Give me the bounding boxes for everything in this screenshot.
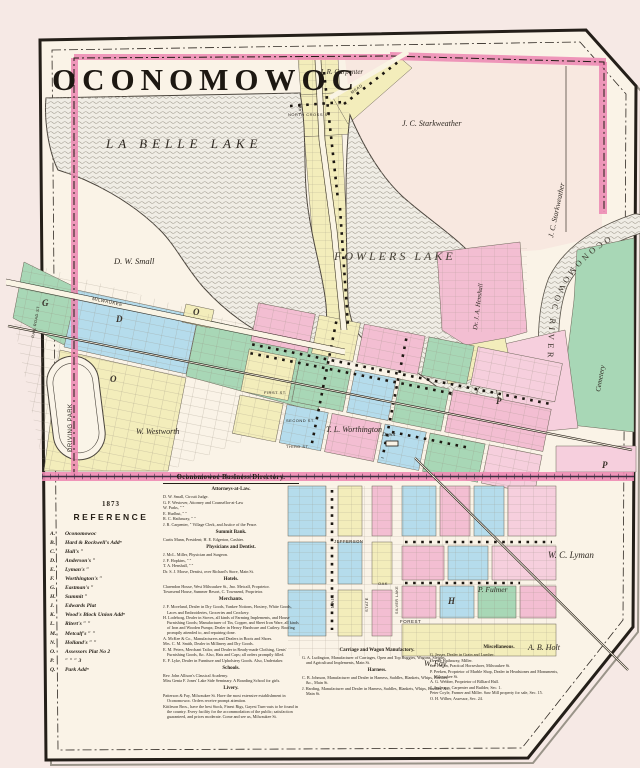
directory-entry: Kittleson Bros., have the best Stock, Fi… <box>163 704 299 719</box>
reference-item-label: ″ ″ ″ 3 <box>65 657 172 666</box>
directory-entry: J. F. Moreland, Dealer in Dry Goods, Yan… <box>163 604 299 614</box>
directory-entry: Rev. John Allison's Classical Academy. <box>163 673 299 678</box>
reference-item-key: O. <box>50 648 65 657</box>
reference-item-label: Worthington's ″ <box>65 575 172 584</box>
section-heading: Hotels. <box>163 577 299 583</box>
directory-entry: P. Peeken, Proprietor of Marble Shop, De… <box>430 669 568 679</box>
directory-entry: Clarendon House, West Milwaukee St., Jno… <box>163 584 299 589</box>
reference-heading: REFERENCE <box>50 512 172 522</box>
reference-year: 1873 <box>50 500 172 508</box>
directory-entry: E. M. Peters, Merchant Tailor, and Deale… <box>163 647 299 657</box>
reference-item: M. Metcalf's ″ ″ <box>50 630 172 639</box>
directory-entry: D. W. Small, Circuit Judge. <box>163 494 299 499</box>
state-st-label: STATE <box>364 597 369 612</box>
directory-entry: W. Parks, ″ ″ <box>163 505 299 510</box>
directory-section-misc: Miscellaneous. G. Jesser, Dealer in Grai… <box>430 645 568 701</box>
directory-misc-column: Miscellaneous. G. Jesser, Dealer in Grai… <box>430 642 568 702</box>
reference-item: J. Edwards Plat <box>50 602 172 611</box>
reference-item: P. ″ ″ ″ 3 <box>50 657 172 666</box>
directory-entry: J. R. Carpenter, ″ Village Clerk, and Ju… <box>163 522 299 527</box>
reference-item-label: Anderson's ″ <box>65 557 172 566</box>
reference-item-label: Oconomowoc <box>65 530 172 539</box>
plat-letter-g: G <box>42 298 49 308</box>
section-heading: Miscellaneous. <box>430 645 568 651</box>
main-st-label: MAIN <box>330 595 335 608</box>
reference-item-key: B. <box>50 539 65 548</box>
third-st-label: THIRD ST. <box>286 444 310 449</box>
reference-item-key: E. <box>50 566 65 575</box>
directory-entry: Jas. Fallon, Practical Horseshoer, Milwa… <box>430 663 568 668</box>
south-town-grid <box>288 486 556 656</box>
depot-label: Depot <box>381 432 396 438</box>
section-heading: Merchants. <box>163 597 299 603</box>
business-directory: Oconomowoc Business Directory. Attorneys… <box>163 474 299 720</box>
reference-item-key: C. <box>50 548 65 557</box>
section-heading: Physicians and Dentist. <box>163 545 299 551</box>
carpenter-label: J. R. Carpenter <box>320 68 363 76</box>
reference-item: B. Hard & Rockwell's Addⁿ <box>50 539 172 548</box>
westworth-label: W. Westworth <box>136 427 179 436</box>
directory-entry: A. G. Webber, Proprietor of Billiard Hal… <box>430 679 568 684</box>
directory-entry: J. Anderson, Carpenter and Builder, Sec.… <box>430 685 568 690</box>
reference-item-key: M. <box>50 630 65 639</box>
directory-entry: Townsend House, Summer Resort, C. Townse… <box>163 589 299 594</box>
reference-item-key: G. <box>50 584 65 593</box>
reference-item-key: Q. <box>50 666 65 675</box>
lyman-label: W. C. Lyman <box>548 550 594 560</box>
plat-letter-p: P <box>496 396 502 406</box>
driving-park-label: DRIVING PARK <box>68 403 74 452</box>
reference-item-key: P. <box>50 657 65 666</box>
directory-entry: E. Hurlbut, ″ ″ <box>163 511 299 516</box>
reference-item: O. Assessors Plat No 2 <box>50 648 172 657</box>
reference-list: A. Oconomowoc B. Hard & Rockwell's Addⁿ … <box>50 530 172 675</box>
reference-item-key: H. <box>50 593 65 602</box>
directory-section-physicians: Physicians and Dentist. J. McL. Miller, … <box>163 545 299 574</box>
map-title: OCONOMOWOC <box>52 62 360 97</box>
reference-legend: 1873 REFERENCE A. Oconomowoc B. Hard & R… <box>50 500 172 675</box>
plat-letter-o: O <box>110 374 117 384</box>
directory-entry: J. McL. Miller, Physician and Surgeon. <box>163 552 299 557</box>
directory-entry: G. F. Westover, Attorney and Counsellor-… <box>163 500 299 505</box>
reference-item: D. Anderson's ″ <box>50 557 172 566</box>
directory-entry: J. F. Hopkins, ″ ″ <box>163 558 299 563</box>
reference-item: N. Holland's ″ ″ <box>50 639 172 648</box>
reference-item: Q. Park Addⁿ <box>50 666 172 675</box>
silver-lake-st-label: SILVER LAKE <box>395 586 399 614</box>
reference-item: E. Lyman's ″ <box>50 566 172 575</box>
reference-item-label: Ritert's ″ ″ <box>65 620 172 629</box>
oak-st-label: OAK <box>378 581 388 586</box>
plat-letter-d: D <box>115 314 123 324</box>
la-belle-lake-label: LA BELLE LAKE <box>105 136 263 151</box>
reference-item: H. Summit ″ <box>50 593 172 602</box>
reference-item-label: Summit ″ <box>65 593 172 602</box>
reference-item-label: Metcalf's ″ ″ <box>65 630 172 639</box>
first-st-label: FIRST ST. <box>264 390 287 395</box>
directory-entry: Orville Hathaway, Miller. <box>430 658 568 663</box>
forest-st-label: FOREST <box>400 619 421 624</box>
reference-item-label: Edwards Plat <box>65 602 172 611</box>
reference-item-label: Holland's ″ ″ <box>65 639 172 648</box>
directory-entry: H. Lodeborg, Dealer in Stoves, all kinds… <box>163 615 299 635</box>
directory-entry: A. McKee & Co., Manufacturers and Dealer… <box>163 636 299 641</box>
reference-item: K. Wood's Block Union Addⁿ <box>50 611 172 620</box>
directory-section-schools: Schools. Rev. John Allison's Classical A… <box>163 666 299 684</box>
directory-entry: R. C. Hathaway, ″ ″ <box>163 516 299 521</box>
second-st-label: SECOND ST. <box>286 418 315 423</box>
plat-letter-p2: P <box>602 460 608 470</box>
section-heading: Summit Bank. <box>163 530 299 536</box>
reference-item-key: J. <box>50 602 65 611</box>
small-label: D. W. Small <box>113 256 155 266</box>
reference-item: F. Worthington's ″ <box>50 575 172 584</box>
directory-section-merchants: Merchants. J. F. Moreland, Dealer in Dry… <box>163 597 299 662</box>
reference-item-label: Hall's ″ <box>65 548 172 557</box>
north-cross-st-label: NORTH CROSS ST <box>288 112 331 117</box>
directory-entry: Dr. S. J. Morse, Dentist, over Richard's… <box>163 569 299 574</box>
directory-section-attorneys: Attorneys-at-Law. D. W. Small, Circuit J… <box>163 487 299 527</box>
reference-item-key: D. <box>50 557 65 566</box>
reference-item: C. Hall's ″ <box>50 548 172 557</box>
directory-section-livery: Livery. Patterson & Fay, Milwaukee St. H… <box>163 686 299 719</box>
reference-item-label: Lyman's ″ <box>65 566 172 575</box>
section-heading: Attorneys-at-Law. <box>163 487 299 493</box>
depot-building <box>386 441 398 446</box>
jefferson-st-label: JEFFERSON <box>334 539 363 544</box>
reference-item-label: Park Addⁿ <box>65 666 172 675</box>
plat-p-east-block <box>556 446 636 472</box>
plat-letter-o2: O <box>193 307 200 317</box>
reference-item: A. Oconomowoc <box>50 530 172 539</box>
reference-item: G. Eastman's ″ <box>50 584 172 593</box>
directory-entry: Curtis Mann, President; H. E. Edgerton, … <box>163 537 299 542</box>
reference-item-key: N. <box>50 639 65 648</box>
directory-entry: G. Jesser, Dealer in Grain and Lumber. <box>430 652 568 657</box>
directory-section-hotels: Hotels. Clarendon House, West Milwaukee … <box>163 577 299 595</box>
directory-entry: Patterson & Fay, Milwaukee St. Have the … <box>163 693 299 703</box>
reference-item-key: K. <box>50 611 65 620</box>
directory-title: Oconomowoc Business Directory. <box>163 474 299 484</box>
directory-entry: Peter Coyle, Farmer and Miller. Saw Mill… <box>430 690 568 695</box>
directory-section-bank: Summit Bank. Curtis Mann, President; H. … <box>163 530 299 542</box>
reference-item-label: Assessors Plat No 2 <box>65 648 172 657</box>
fulmer-label: P. Fulmer <box>477 585 508 594</box>
reference-item-key: A. <box>50 530 65 539</box>
reference-item-label: Hard & Rockwell's Addⁿ <box>65 539 172 548</box>
section-heading: Livery. <box>163 686 299 692</box>
directory-entry: Miss Genia F. Jones' Lake Side Seminary.… <box>163 678 299 683</box>
directory-entry: Mrs. C. M. Smith, Dealer in Millinery an… <box>163 641 299 646</box>
reference-item-key: L. <box>50 620 65 629</box>
worthington-label: T. L. Worthington <box>326 425 382 434</box>
directory-entry: T. A. Henshall, ″ ″ <box>163 563 299 568</box>
reference-item: L. Ritert's ″ ″ <box>50 620 172 629</box>
plat-letter-h: H <box>447 596 456 606</box>
reference-item-key: F. <box>50 575 65 584</box>
reference-item-label: Eastman's ″ <box>65 584 172 593</box>
starkweather-label: J. C. Starkweather <box>402 119 462 128</box>
reference-item-label: Wood's Block Union Addⁿ <box>65 611 172 620</box>
fowlers-lake-label: FOWLERS LAKE <box>333 249 456 263</box>
section-heading: Schools. <box>163 666 299 672</box>
directory-entry: O. H. Wilber, Assessor, Sec. 24. <box>430 696 568 701</box>
directory-entry: E. F. Lyke, Dealer in Furniture and Upho… <box>163 658 299 663</box>
map-page: { "map": { "title": "OCONOMOWOC", "label… <box>0 0 640 768</box>
